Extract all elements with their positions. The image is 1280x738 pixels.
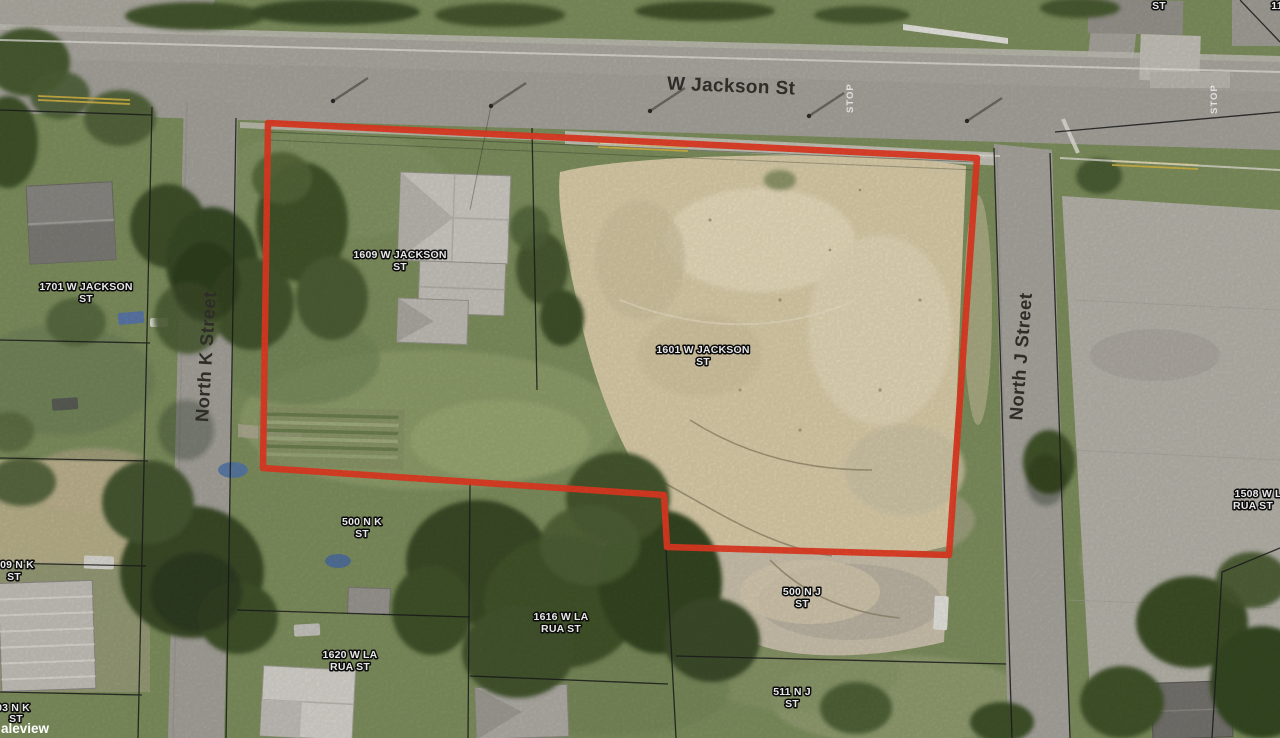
aerial-map[interactable]: STOP STOP W Jackson St North K Street No… bbox=[0, 0, 1280, 738]
watermark: aleview bbox=[1, 721, 50, 736]
aerial-map-canvas[interactable]: STOP STOP W Jackson St North K Street No… bbox=[0, 0, 1280, 738]
photo-grain-overlay bbox=[0, 0, 1280, 738]
